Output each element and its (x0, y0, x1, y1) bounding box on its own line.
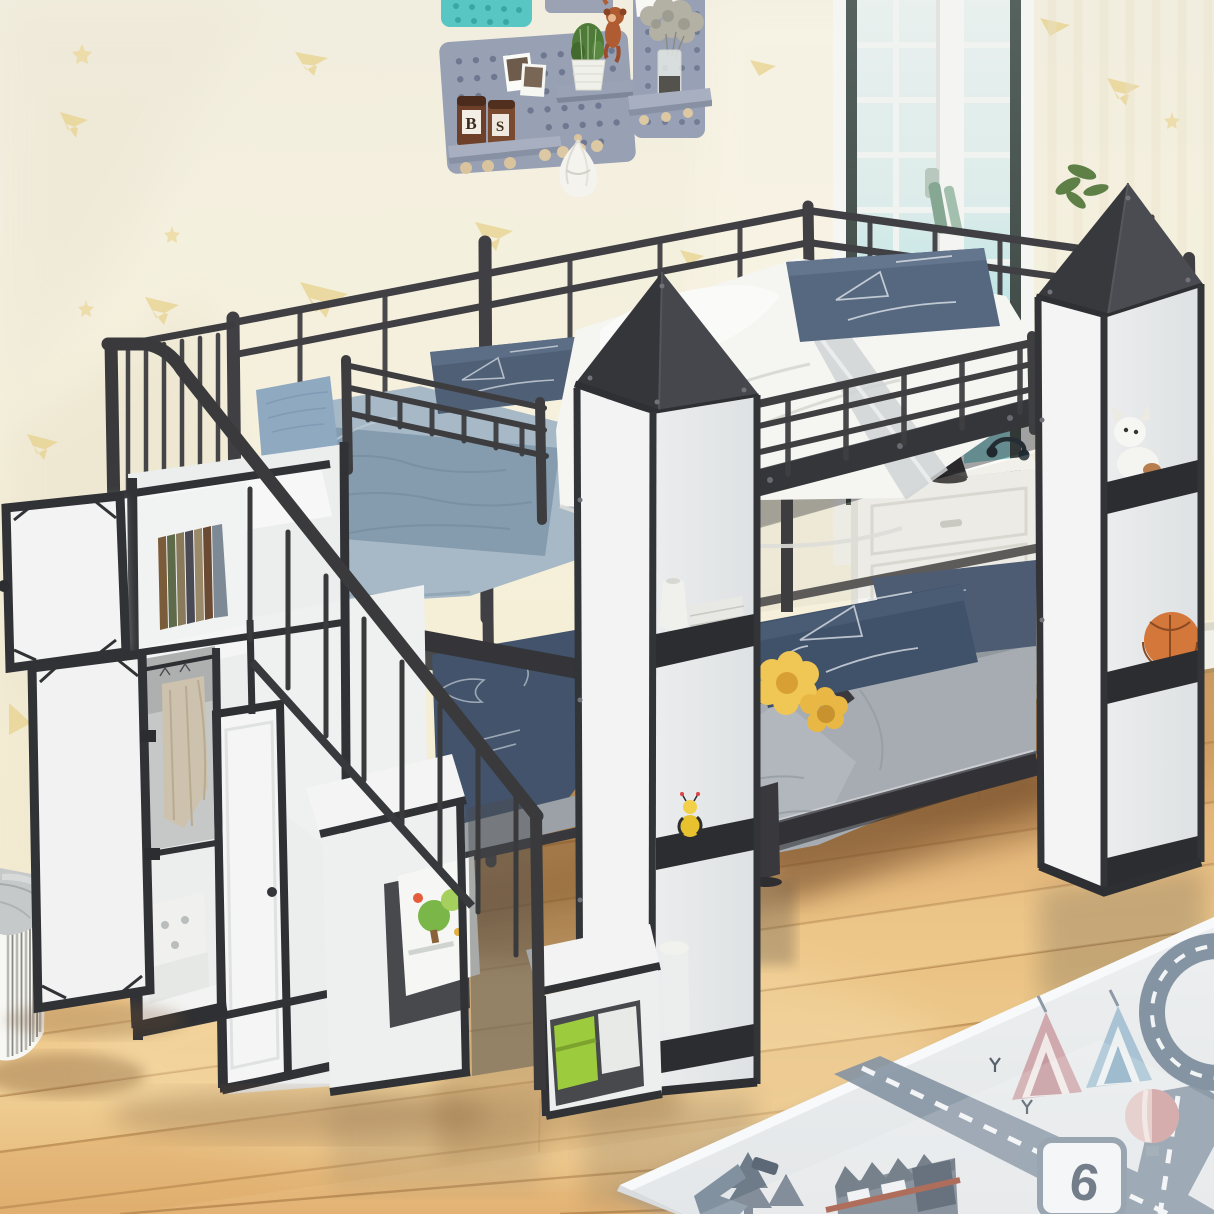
svg-text:B: B (465, 114, 476, 133)
svg-text:S: S (496, 119, 504, 135)
